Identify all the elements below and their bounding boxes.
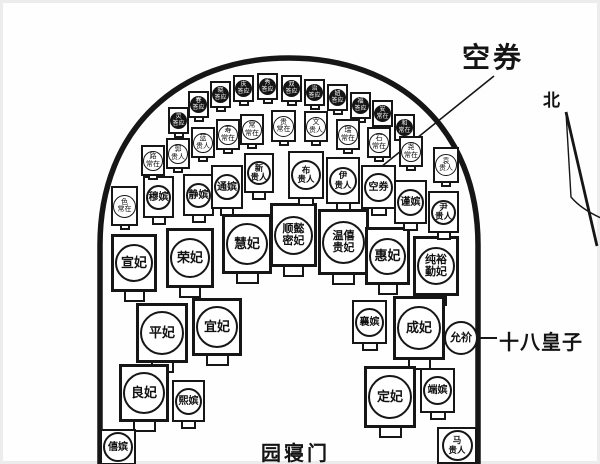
tomb-pedestal	[374, 156, 384, 162]
tomb-pedestal	[152, 216, 166, 225]
tomb-xiao-daying: 晓 答应	[210, 81, 231, 108]
tomb-circle: 石 常在	[369, 133, 389, 153]
tomb-pedestal	[181, 420, 196, 429]
tomb-name: 允祄	[450, 332, 472, 344]
tomb-xi-pin-1: 僖嫔	[100, 429, 136, 464]
tomb-circle: 寿 常在	[218, 125, 238, 145]
tomb-pedestal	[378, 283, 398, 295]
tomb-name: 蓝 贵人	[196, 135, 210, 150]
tomb-name: 路 常在	[146, 153, 160, 168]
tomb-xiu-daying: 秀 答应	[257, 73, 278, 100]
tomb-circle: 宜妃	[196, 306, 238, 348]
tomb-pedestal	[333, 109, 343, 115]
tomb-hui-fei-2: 惠妃	[365, 227, 410, 285]
tomb-lu-changzai: 路 常在	[141, 145, 165, 176]
tomb-rui-changzai: 瑞 常在	[336, 119, 360, 150]
tomb-name: 灵 答应	[172, 114, 184, 127]
tomb-circle: 端嫔	[423, 376, 452, 405]
tomb-circle: 静嫔	[186, 183, 211, 208]
tomb-kong-quan: 空券	[361, 165, 396, 209]
tomb-name: 熙嫔	[179, 396, 199, 407]
tomb-name: 成妃	[406, 321, 432, 335]
tomb-pedestal	[198, 156, 208, 162]
tomb-circle: 定妃	[368, 375, 412, 419]
tomb-name: 瑞 常在	[341, 127, 355, 142]
tomb-pedestal	[239, 100, 249, 106]
tomb-circle: 郭 贵人	[168, 144, 188, 164]
tomb-cheng-fei: 成妃	[393, 296, 445, 360]
tomb-circle: 治 答应	[306, 84, 323, 101]
tomb-circle: 平妃	[140, 311, 184, 355]
tomb-circle: 马 贵人	[442, 430, 473, 461]
tomb-name: 秀 答应	[261, 80, 273, 93]
tomb-name: 袁 贵人	[439, 158, 453, 173]
tomb-pedestal	[441, 181, 451, 187]
tomb-circle: 文 贵人	[306, 117, 326, 137]
tomb-liang-fei: 良妃	[119, 364, 169, 422]
tomb-circle: 顺懿 密妃	[274, 216, 313, 255]
tomb-circle: 安 常在	[374, 105, 391, 122]
tomb-ma-guiren: 马 贵人	[437, 427, 477, 464]
tomb-circle: 慧妃	[226, 223, 268, 265]
tomb-circle: 袁 贵人	[435, 154, 457, 176]
tomb-chun-daying: 春 答应	[188, 91, 209, 118]
tomb-pedestal	[192, 214, 206, 223]
tomb-tong-pin: 通嫔	[211, 165, 243, 209]
tomb-circle: 瑞 常在	[338, 125, 358, 145]
prince-label: 十八皇子	[499, 326, 583, 355]
tomb-name: 色 常在	[118, 199, 132, 214]
tomb-circle: 新 贵人	[247, 161, 271, 185]
tomb-se-changzai: 色 常在	[111, 186, 138, 226]
tomb-ding-fei: 定妃	[364, 366, 416, 428]
tomb-lan-guiren: 蓝 贵人	[191, 127, 215, 158]
tomb-xin-guiren: 新 贵人	[244, 153, 274, 193]
tomb-circle: 惠妃	[369, 238, 406, 275]
tomb-shou-changzai: 寿 常在	[216, 119, 240, 150]
tomb-circle: 和 常在	[396, 119, 413, 136]
tomb-name: 安 常在	[376, 107, 388, 120]
tomb-circle: 常 常在	[242, 120, 262, 140]
tomb-circle: 空券	[364, 173, 393, 202]
tomb-name: 襄嫔	[360, 317, 380, 328]
tomb-circle: 布 贵人	[291, 160, 321, 190]
tomb-name: 平妃	[149, 326, 175, 340]
tomb-circle: 通嫔	[214, 174, 240, 200]
tomb-circle: 色 常在	[113, 195, 136, 218]
tomb-circle: 贵 常在	[273, 116, 294, 137]
tomb-name: 顺懿 密妃	[283, 223, 305, 247]
tomb-circle: 伊 贵人	[329, 167, 357, 195]
tomb-pedestal	[236, 272, 259, 284]
tomb-pedestal	[403, 222, 418, 231]
tomb-pedestal	[247, 143, 257, 149]
tomb-circle: 庆 答应	[235, 80, 252, 97]
tomb-xuan-fei: 宣妃	[111, 234, 157, 292]
tomb-jin-pin: 谨嫔	[394, 180, 427, 224]
tomb-circle: 纯裕 勤妃	[417, 247, 455, 285]
tomb-pedestal	[148, 174, 158, 180]
tomb-gui-changzai: 贵 常在	[271, 110, 296, 142]
tomb-shuang-daying: 双 答应	[281, 75, 302, 102]
tomb-name: 双 答应	[285, 82, 297, 95]
tomb-name: 纯裕 勤妃	[425, 254, 447, 278]
tomb-name: 荣妃	[177, 251, 203, 265]
tomb-name: 布 贵人	[297, 166, 314, 185]
tomb-yin-guiren: 尹 贵人	[428, 191, 459, 233]
tomb-pedestal	[252, 191, 266, 200]
tomb-name: 穆嫔	[149, 192, 169, 203]
tomb-chunyu-qinfei: 纯裕 勤妃	[413, 236, 459, 296]
tomb-ping-fei: 平妃	[136, 303, 188, 363]
tomb-circle: 福 答应	[352, 97, 369, 114]
tomb-name: 端嫔	[428, 385, 448, 396]
tomb-circle: 双 答应	[283, 80, 300, 97]
tomb-pedestal	[279, 140, 289, 146]
tomb-name: 慧妃	[234, 237, 260, 251]
tomb-pedestal	[194, 116, 204, 122]
tomb-yun-xie: 允祄	[444, 321, 478, 355]
tomb-circle: 僖嫔	[103, 432, 133, 462]
tomb-niu-daying: 妞 答应	[327, 84, 348, 111]
tomb-pedestal	[343, 148, 353, 154]
tomb-pedestal	[430, 411, 446, 420]
tomb-name: 和 常在	[398, 121, 410, 134]
tomb-name: 空券	[369, 182, 389, 193]
tomb-zhi-daying: 治 答应	[304, 79, 325, 106]
tomb-circle: 尹 贵人	[431, 200, 456, 225]
tomb-an-changzai: 安 常在	[372, 100, 393, 127]
tomb-pedestal	[223, 148, 233, 154]
tomb-pedestal	[206, 354, 229, 366]
tomb-circle: 妞 答应	[329, 89, 346, 106]
tomb-circle: 荣妃	[170, 238, 210, 278]
tomb-name: 石 常在	[372, 135, 386, 150]
north-label: 北	[543, 86, 560, 111]
tomb-fu-daying: 福 答应	[350, 92, 371, 119]
tomb-circle: 允祄	[444, 321, 478, 355]
tomb-name: 治 答应	[308, 86, 320, 99]
tomb-circle: 熙嫔	[175, 388, 202, 415]
gate-label: 园寝门	[261, 437, 330, 464]
tomb-name: 福 答应	[354, 99, 366, 112]
tomb-circle: 蓝 贵人	[193, 133, 213, 153]
tomb-name: 春 答应	[192, 98, 204, 111]
tomb-jing-pin: 静嫔	[183, 174, 214, 216]
tomb-ling-daying: 灵 答应	[168, 107, 189, 134]
tomb-name: 庆 答应	[237, 82, 249, 95]
tomb-pedestal	[379, 426, 402, 438]
tomb-name: 郭 贵人	[171, 146, 185, 161]
tomb-qing-daying: 庆 答应	[233, 75, 254, 102]
tomb-name: 谨嫔	[401, 197, 421, 208]
tomb-name: 尹 贵人	[435, 203, 452, 222]
tomb-circle: 温僖 贵妃	[322, 221, 365, 264]
tomb-name: 良妃	[131, 386, 157, 400]
tomb-circle: 襄嫔	[355, 308, 384, 337]
tomb-yi-fei: 宜妃	[192, 298, 242, 356]
tomb-pedestal	[283, 265, 304, 277]
empty-vault-label: 空券	[462, 36, 524, 76]
tomb-name: 宣妃	[121, 256, 147, 270]
tomb-pedestal	[332, 273, 355, 285]
tomb-name: 通嫔	[217, 182, 237, 193]
tomb-circle: 路 常在	[143, 151, 163, 171]
tomb-pedestal	[311, 140, 321, 146]
tomb-bu-guiren: 布 贵人	[288, 151, 324, 199]
tomb-circle: 穆嫔	[146, 185, 171, 210]
tomb-pedestal	[310, 104, 320, 110]
tomb-pedestal	[120, 224, 130, 230]
tomb-name: 温僖 贵妃	[333, 230, 355, 254]
tomb-name: 定妃	[377, 390, 403, 404]
tomb-name: 新 贵人	[250, 164, 267, 183]
tomb-pedestal	[406, 165, 416, 171]
tomb-layout-diagram: 空券 北 十八皇子 园寝门 宣妃荣妃慧妃顺懿 密妃温僖 贵妃惠妃纯裕 勤妃平妃宜…	[0, 0, 600, 464]
tomb-yuan-guiren: 袁 贵人	[433, 147, 459, 183]
tomb-pedestal	[437, 231, 451, 240]
tomb-yi-guiren: 伊 贵人	[326, 157, 360, 204]
tomb-guo-guiren: 郭 贵人	[166, 138, 190, 169]
tomb-name: 晓 答应	[214, 88, 226, 101]
tomb-name: 静嫔	[189, 190, 209, 201]
tomb-pedestal	[336, 202, 351, 211]
tomb-shi-changzai: 石 常在	[367, 127, 391, 158]
tomb-name: 文 贵人	[309, 119, 323, 134]
tomb-pedestal	[220, 207, 234, 216]
tomb-wen-guiren: 文 贵人	[304, 111, 328, 142]
tomb-chang-changzai: 常 常在	[240, 114, 264, 145]
tomb-name: 尧 常在	[404, 144, 418, 159]
north-arrow	[566, 112, 600, 246]
tomb-yao-changzai: 尧 常在	[399, 136, 423, 167]
tomb-name: 宜妃	[204, 320, 230, 334]
tomb-mu-pin: 穆嫔	[143, 176, 174, 218]
tomb-circle: 成妃	[397, 306, 441, 350]
tomb-name: 常 常在	[245, 122, 259, 137]
tomb-pedestal	[298, 197, 314, 206]
tomb-circle: 宣妃	[115, 244, 153, 282]
tomb-pedestal	[362, 342, 378, 351]
tomb-pedestal	[124, 290, 145, 302]
tomb-name: 僖嫔	[108, 442, 128, 453]
tomb-circle: 灵 答应	[170, 112, 187, 129]
tomb-circle: 秀 答应	[259, 78, 276, 95]
tomb-circle: 春 答应	[190, 96, 207, 113]
tomb-pedestal	[179, 286, 201, 298]
tomb-name: 马 贵人	[448, 436, 465, 455]
tomb-circle: 晓 答应	[212, 86, 229, 103]
tomb-name: 贵 常在	[277, 119, 291, 134]
tomb-pedestal	[173, 167, 183, 173]
tomb-pedestal	[216, 106, 226, 112]
tomb-circle: 良妃	[123, 372, 165, 414]
tomb-pedestal	[263, 98, 273, 104]
tomb-name: 妞 答应	[331, 91, 343, 104]
tomb-xiang-pin: 襄嫔	[352, 300, 387, 344]
tomb-circle: 尧 常在	[401, 142, 421, 162]
tomb-duan-pin: 端嫔	[420, 368, 455, 413]
tomb-wenxi-guifei: 温僖 贵妃	[318, 209, 369, 275]
tomb-name: 寿 常在	[221, 127, 235, 142]
tomb-xi-pin-2: 熙嫔	[172, 380, 205, 422]
tomb-name: 伊 贵人	[334, 171, 351, 190]
tomb-shunyi-mifei: 顺懿 密妃	[270, 203, 317, 267]
tomb-rong-fei: 荣妃	[166, 228, 214, 288]
tomb-hui-fei-1: 慧妃	[222, 214, 272, 274]
tomb-pedestal	[287, 100, 297, 106]
tomb-circle: 谨嫔	[397, 189, 424, 216]
tomb-name: 惠妃	[374, 249, 400, 263]
tomb-pedestal	[371, 207, 387, 216]
